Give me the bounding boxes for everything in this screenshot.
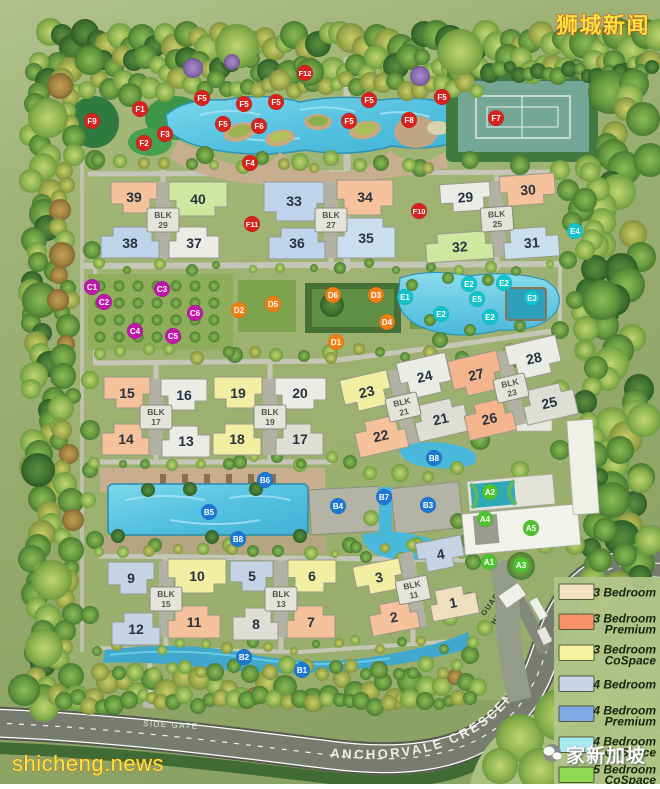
svg-text:E2: E2	[485, 313, 495, 322]
svg-text:F7: F7	[491, 114, 501, 123]
svg-text:F5: F5	[364, 96, 374, 105]
svg-text:Premium: Premium	[605, 715, 657, 729]
svg-text:BLK: BLK	[147, 407, 165, 417]
svg-text:31: 31	[523, 234, 540, 251]
svg-text:D4: D4	[382, 318, 393, 327]
svg-text:32: 32	[452, 238, 469, 255]
svg-text:20: 20	[292, 385, 308, 401]
svg-text:F5: F5	[239, 100, 249, 109]
svg-text:13: 13	[276, 599, 286, 609]
svg-text:37: 37	[186, 235, 202, 251]
svg-text:B4: B4	[333, 502, 344, 511]
svg-text:BLK: BLK	[272, 589, 290, 599]
svg-text:A5: A5	[526, 524, 537, 533]
svg-text:A1: A1	[484, 558, 495, 567]
svg-text:Premium: Premium	[605, 623, 657, 637]
svg-text:F3: F3	[160, 130, 170, 139]
svg-text:BLK: BLK	[154, 210, 172, 220]
svg-text:12: 12	[128, 621, 144, 637]
svg-text:F9: F9	[87, 117, 97, 126]
svg-text:29: 29	[158, 220, 168, 230]
svg-text:35: 35	[358, 230, 374, 246]
svg-text:C6: C6	[190, 309, 201, 318]
svg-text:9: 9	[127, 570, 135, 586]
svg-text:F4: F4	[245, 159, 255, 168]
svg-text:19: 19	[265, 417, 275, 427]
svg-text:16: 16	[176, 387, 192, 403]
svg-text:F5: F5	[437, 93, 447, 102]
svg-text:C5: C5	[168, 332, 179, 341]
svg-text:A4: A4	[480, 515, 491, 524]
svg-text:27: 27	[326, 220, 336, 230]
svg-text:C2: C2	[99, 298, 110, 307]
svg-text:E3: E3	[527, 294, 537, 303]
svg-text:E5: E5	[472, 295, 482, 304]
svg-text:A3: A3	[516, 561, 527, 570]
svg-text:13: 13	[178, 433, 194, 449]
svg-text:F11: F11	[246, 220, 259, 229]
svg-text:F5: F5	[197, 94, 207, 103]
svg-text:shicheng.news: shicheng.news	[12, 751, 164, 776]
svg-text:D1: D1	[331, 338, 342, 347]
svg-text:F2: F2	[139, 139, 149, 148]
svg-text:BLK: BLK	[488, 208, 507, 219]
svg-text:狮城新闻: 狮城新闻	[556, 13, 650, 38]
svg-text:F12: F12	[299, 69, 312, 78]
svg-text:D6: D6	[328, 291, 339, 300]
svg-text:F5: F5	[271, 98, 281, 107]
svg-text:18: 18	[229, 431, 245, 447]
svg-text:C1: C1	[87, 283, 98, 292]
svg-text:30: 30	[520, 181, 537, 198]
svg-text:7: 7	[307, 614, 315, 630]
svg-text:10: 10	[189, 568, 205, 584]
svg-text:33: 33	[286, 193, 302, 209]
svg-text:B7: B7	[379, 493, 390, 502]
svg-text:BLK: BLK	[157, 589, 175, 599]
svg-text:F1: F1	[135, 105, 145, 114]
svg-text:B1: B1	[297, 666, 308, 675]
svg-text:17: 17	[151, 417, 161, 427]
svg-text:B5: B5	[204, 508, 215, 517]
svg-text:D2: D2	[234, 306, 245, 315]
svg-text:E2: E2	[499, 279, 509, 288]
svg-text:F5: F5	[218, 120, 228, 129]
svg-text:15: 15	[161, 599, 171, 609]
svg-text:34: 34	[357, 189, 373, 205]
svg-text:B8: B8	[233, 535, 244, 544]
svg-text:8: 8	[252, 616, 260, 632]
svg-text:4 Bedroom: 4 Bedroom	[592, 678, 656, 692]
svg-text:15: 15	[119, 385, 135, 401]
svg-text:BLK: BLK	[261, 407, 279, 417]
svg-text:E4: E4	[570, 227, 580, 236]
svg-text:D5: D5	[268, 300, 279, 309]
svg-text:BLK: BLK	[322, 210, 340, 220]
svg-text:C4: C4	[130, 327, 141, 336]
svg-text:39: 39	[126, 189, 142, 205]
svg-text:14: 14	[118, 431, 134, 447]
svg-text:40: 40	[190, 191, 206, 207]
svg-text:A2: A2	[485, 488, 496, 497]
svg-text:5: 5	[248, 568, 256, 584]
svg-text:CoSpace: CoSpace	[605, 773, 657, 784]
svg-text:19: 19	[230, 385, 246, 401]
svg-text:36: 36	[289, 235, 305, 251]
svg-text:B3: B3	[423, 501, 434, 510]
svg-text:E2: E2	[436, 310, 446, 319]
svg-text:CoSpace: CoSpace	[605, 654, 657, 668]
svg-text:B8: B8	[429, 454, 440, 463]
svg-text:E2: E2	[464, 280, 474, 289]
svg-text:家新加坡: 家新加坡	[566, 744, 646, 767]
svg-text:17: 17	[292, 431, 308, 447]
svg-text:3 Bedroom: 3 Bedroom	[593, 586, 656, 600]
svg-text:29: 29	[457, 189, 474, 206]
svg-text:F8: F8	[404, 116, 414, 125]
svg-text:25: 25	[492, 219, 502, 230]
svg-text:B6: B6	[260, 476, 271, 485]
svg-text:D3: D3	[371, 291, 382, 300]
svg-text:6: 6	[308, 568, 316, 584]
svg-text:B2: B2	[239, 653, 250, 662]
svg-text:F6: F6	[254, 122, 264, 131]
svg-text:F5: F5	[344, 117, 354, 126]
svg-text:F10: F10	[413, 207, 426, 216]
svg-text:11: 11	[187, 614, 202, 630]
svg-text:C3: C3	[157, 285, 168, 294]
svg-text:38: 38	[122, 235, 138, 251]
svg-text:E1: E1	[400, 293, 410, 302]
